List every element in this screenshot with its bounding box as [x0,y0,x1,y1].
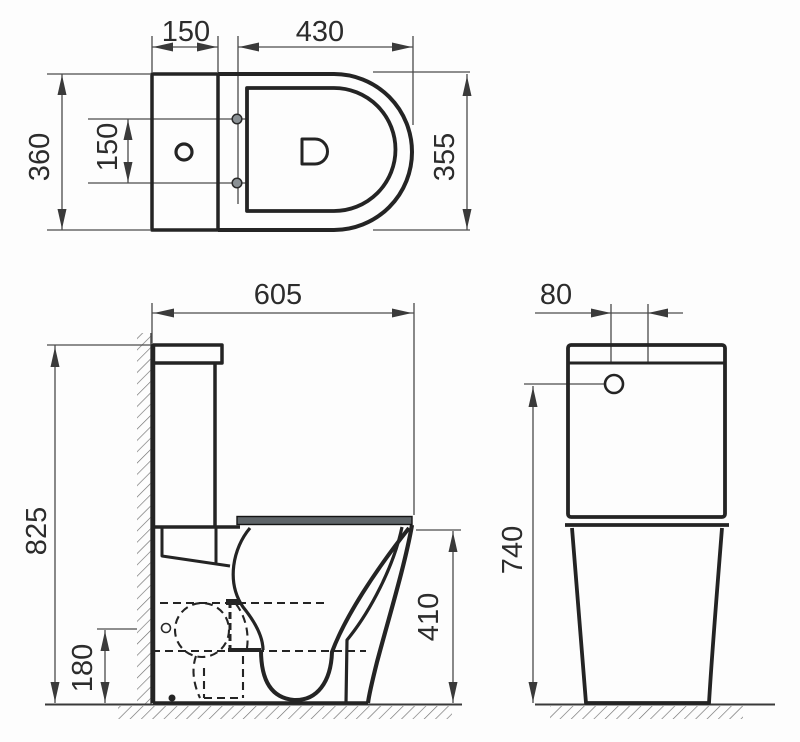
floor-hatch-side [118,706,452,719]
dim-label-hinge-spacing: 150 [92,123,124,171]
wall-hatch [137,333,151,705]
hinge-hole-bottom [232,178,242,188]
technical-drawing: 150 430 360 150 355 [0,0,800,742]
seat-lid-profile [237,517,412,525]
hinge-hole-top [232,114,242,124]
floor-hatch-front [550,706,743,719]
dim-label-tank-depth: 150 [162,16,210,48]
drain-dot [169,695,176,702]
valve-seat-mark [226,599,240,605]
dim-label-button-offset: 80 [540,279,572,311]
dim-label-outlet-height: 180 [67,644,99,692]
dim-label-overall-depth: 605 [254,279,302,311]
flush-button-plan [176,144,192,160]
dim-label-seat-length: 430 [296,16,344,48]
dim-label-overall-height: 825 [21,507,53,555]
dim-label-tank-height: 740 [497,526,529,574]
flush-button-front [605,375,623,393]
dim-label-overall-width: 360 [24,133,56,181]
drawing-page: 150 430 360 150 355 [0,0,800,742]
dim-label-bowl-height: 410 [413,593,445,641]
dim-label-bowl-width: 355 [429,133,461,181]
